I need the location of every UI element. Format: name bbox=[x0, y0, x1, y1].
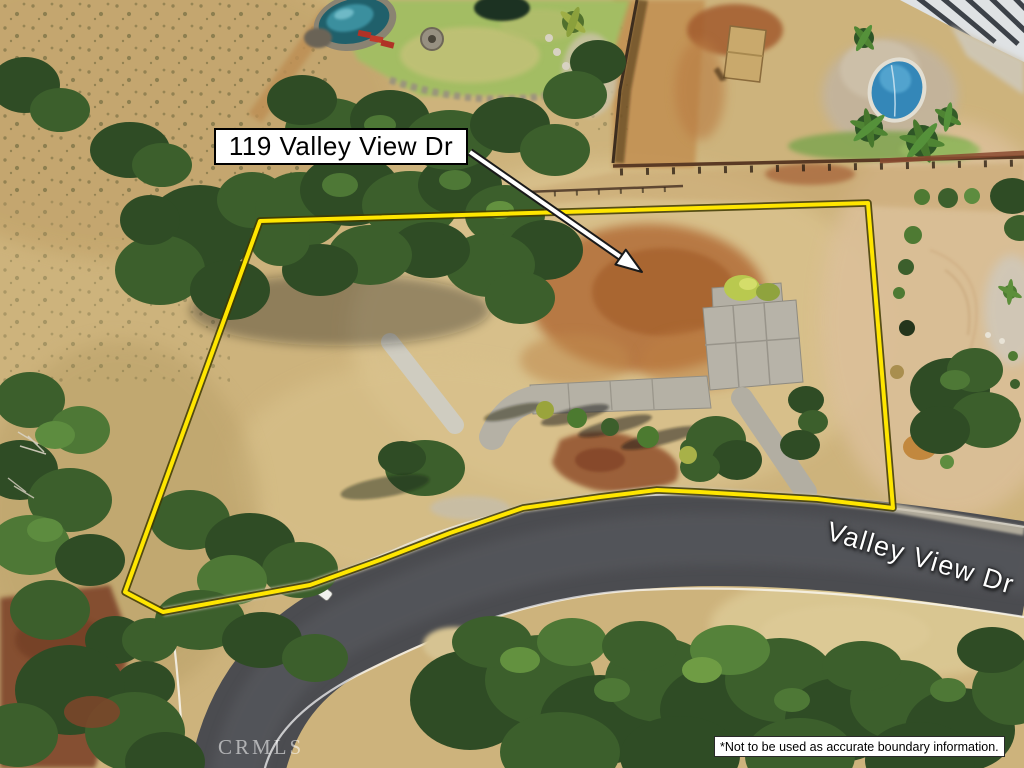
aerial-photo bbox=[0, 0, 1024, 768]
boundary-disclaimer: *Not to be used as accurate boundary inf… bbox=[714, 736, 1005, 757]
watermark-text: CRMLS bbox=[218, 735, 304, 759]
aerial-photo-view: 119 Valley View Dr Valley View Dr CRMLS … bbox=[0, 0, 1024, 768]
disclaimer-text: *Not to be used as accurate boundary inf… bbox=[720, 740, 999, 754]
address-label-text: 119 Valley View Dr bbox=[229, 131, 453, 162]
crmls-watermark: CRMLS bbox=[218, 735, 304, 760]
address-label: 119 Valley View Dr bbox=[214, 128, 468, 165]
